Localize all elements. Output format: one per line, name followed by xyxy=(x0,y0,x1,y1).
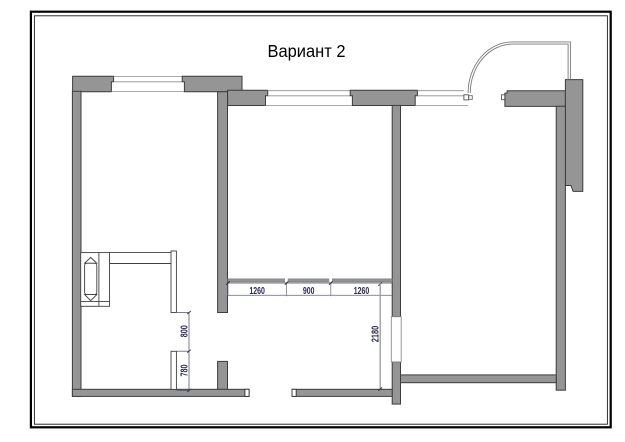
svg-text:800: 800 xyxy=(179,325,190,337)
svg-text:1260: 1260 xyxy=(249,286,265,297)
svg-text:2180: 2180 xyxy=(370,325,381,342)
svg-text:1260: 1260 xyxy=(354,286,370,297)
svg-text:780: 780 xyxy=(179,364,190,376)
svg-text:Вариант 2: Вариант 2 xyxy=(268,41,346,61)
svg-text:900: 900 xyxy=(303,286,315,297)
